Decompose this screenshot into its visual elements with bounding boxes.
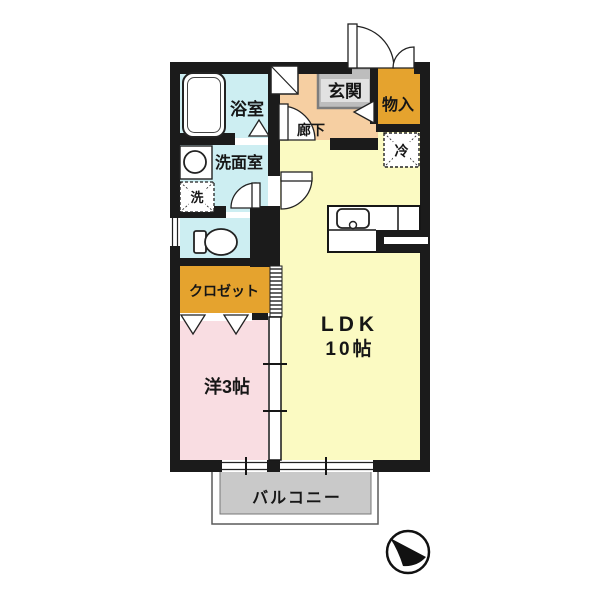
wall-segment [373,460,430,472]
toilet-bowl [205,229,237,255]
hatched-wall-strip [270,266,282,317]
wall-segment [170,258,280,266]
storage-label: 物入 [382,95,414,114]
closet-label: クロゼット [189,283,259,299]
entry-label: 玄関 [328,81,362,101]
toilet-door-leaf [252,183,260,208]
kitchen-pass-through [384,237,428,244]
balcony-label: バルコニー [252,489,342,507]
ldk-label: LDK [321,313,379,336]
floorplan-drawing: 洗 冷 [0,0,600,600]
shoe-cabinet [271,66,298,94]
refrigerator-label: 冷 [395,143,409,159]
wall-segment [330,138,378,150]
entrance-door-leaf [348,24,357,68]
storage-floor [376,68,421,124]
wall-segment [420,62,430,472]
wall-segment [267,460,280,472]
kitchen-counter [328,206,430,252]
washroom-label: 洗面室 [215,153,263,172]
wall-segment [250,206,280,267]
wall-segment [170,246,180,472]
entrance-door-swing [352,26,394,68]
bath-label: 浴室 [230,99,264,119]
corridor-door-leaf [279,104,288,140]
ldk-size-label: 10帖 [325,337,374,360]
kitchen-faucet [350,222,357,229]
ldk-door-leaf [281,172,312,181]
vanity-sink [184,151,206,173]
laundry-space: 洗 [180,182,214,212]
refrigerator-space: 冷 [384,133,419,167]
corridor-label: 廊下 [297,122,325,138]
wall-segment [170,460,222,472]
sliding-partition [269,317,281,460]
north-arrow-compass [387,531,429,573]
floorplan-canvas: 洗 冷 [0,0,600,600]
wall-segment [170,62,180,218]
wall-segment [376,124,430,132]
western-room-window [222,460,267,472]
toilet-window [170,218,180,246]
entrance-child-door-swing [393,47,414,68]
laundry-label: 洗 [190,190,203,205]
western-room-label: 洋3帖 [204,376,250,397]
bathtub [183,73,225,137]
